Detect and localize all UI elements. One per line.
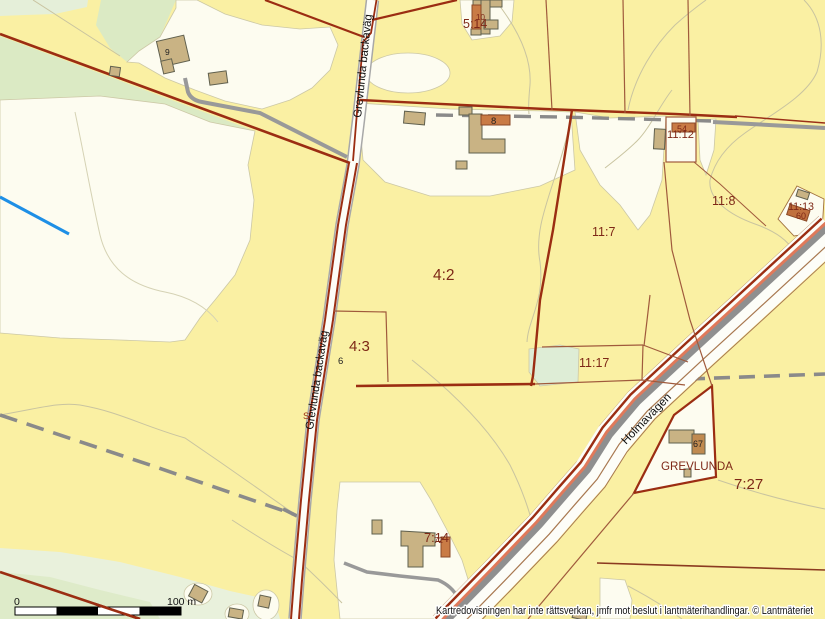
svg-text:4:2: 4:2 (433, 267, 455, 284)
svg-text:9: 9 (165, 47, 170, 57)
svg-text:54: 54 (677, 124, 687, 134)
svg-text:100 m: 100 m (167, 596, 196, 608)
svg-text:8: 8 (491, 116, 496, 127)
svg-text:72: 72 (434, 536, 443, 545)
svg-text:GREVLUNDA: GREVLUNDA (661, 461, 733, 473)
svg-text:10: 10 (476, 13, 485, 22)
svg-text:7:27: 7:27 (734, 476, 763, 493)
svg-text:6: 6 (338, 356, 343, 367)
svg-text:11:17: 11:17 (579, 356, 609, 370)
svg-text:11:7: 11:7 (592, 225, 615, 239)
svg-text:11:8: 11:8 (712, 194, 735, 208)
svg-text:67: 67 (693, 439, 703, 449)
svg-text:S: S (303, 411, 309, 422)
svg-text:4:3: 4:3 (349, 338, 370, 355)
svg-text:60: 60 (796, 211, 806, 221)
svg-text:0: 0 (14, 596, 20, 608)
svg-text:Kartredovisningen har inte rät: Kartredovisningen har inte rättsverkan, … (436, 605, 813, 617)
